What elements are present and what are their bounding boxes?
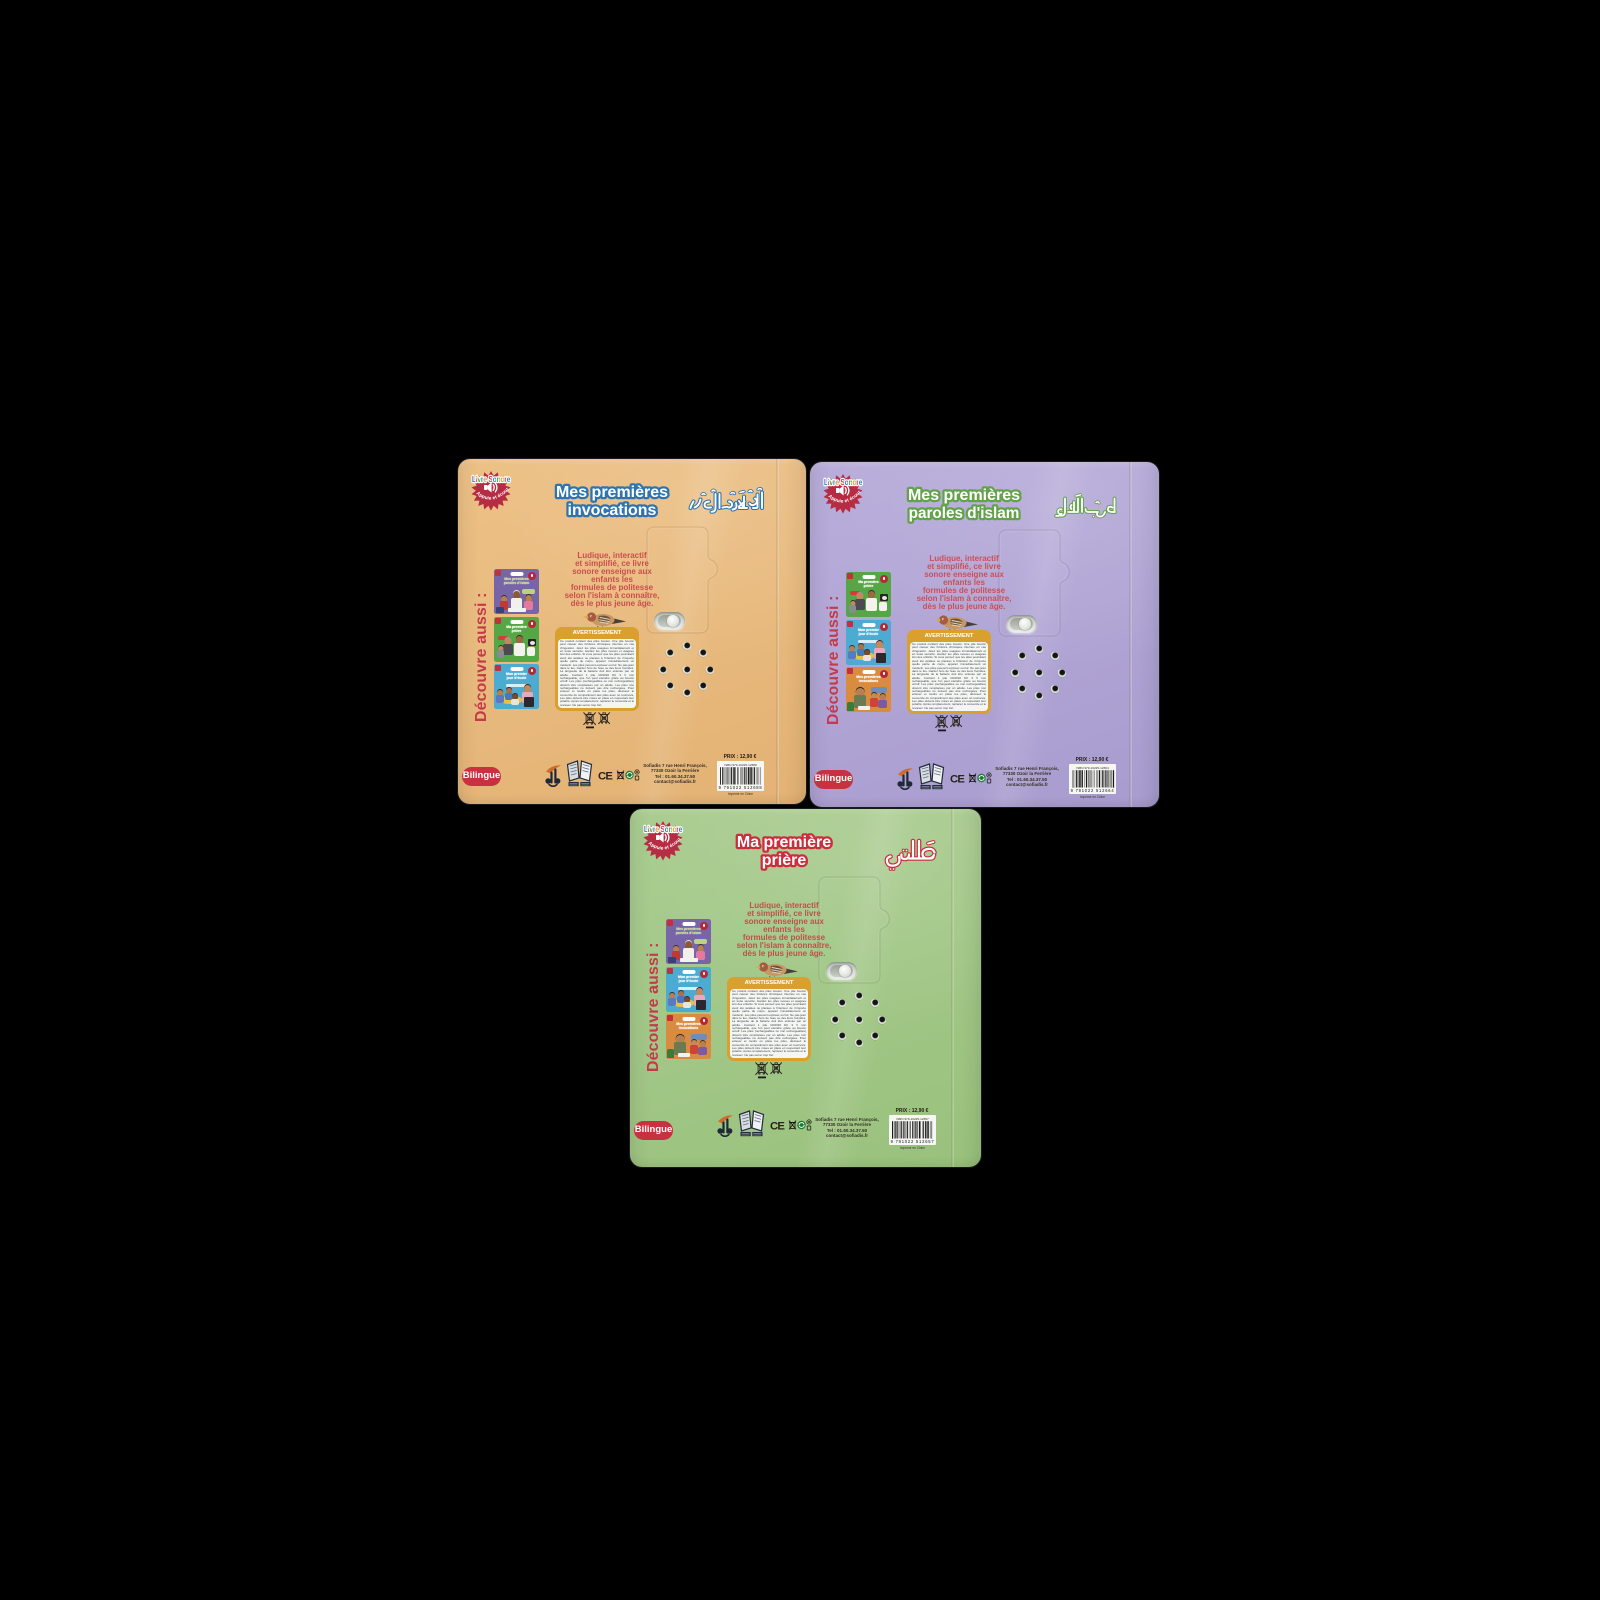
svg-text:Mes premières: Mes premières <box>556 484 668 501</box>
svg-text:ISBN 979-10225-12664: ISBN 979-10225-12664 <box>1076 766 1109 770</box>
svg-text:CE: CE <box>950 773 965 785</box>
svg-text:9 791022 512657: 9 791022 512657 <box>891 1139 935 1144</box>
svg-text:9 791022 512688: 9 791022 512688 <box>719 785 763 790</box>
svg-text:paroles d'islam: paroles d'islam <box>909 505 1020 522</box>
svg-text:Mes premières: Mes premières <box>908 487 1020 504</box>
svg-text:ISBN 979-10225-12688: ISBN 979-10225-12688 <box>724 763 757 767</box>
svg-text:prière: prière <box>762 852 807 869</box>
svg-text:CE: CE <box>598 770 613 782</box>
svg-text:invocations: invocations <box>568 502 657 519</box>
svg-text:ISBN 979-10225-12657: ISBN 979-10225-12657 <box>896 1117 929 1121</box>
svg-text:9 791022 512664: 9 791022 512664 <box>1071 788 1115 793</box>
svg-text:Ma première: Ma première <box>737 834 831 851</box>
svg-text:CE: CE <box>770 1120 785 1132</box>
